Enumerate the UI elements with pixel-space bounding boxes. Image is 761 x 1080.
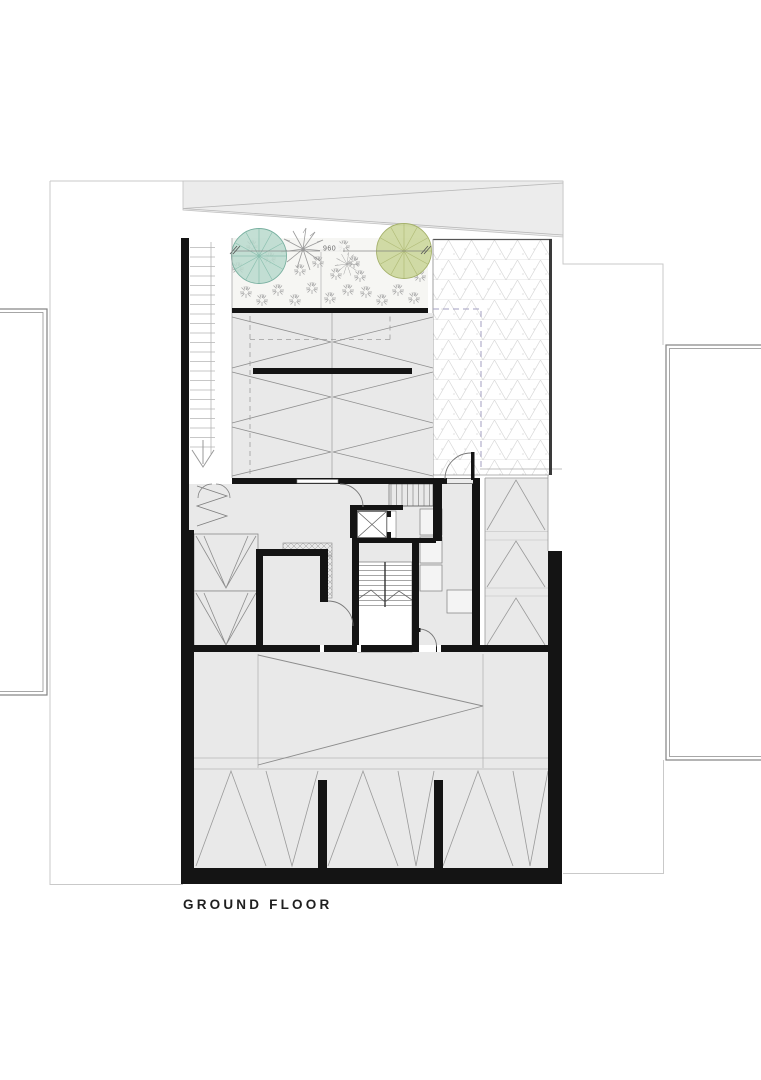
wall-core-v2 (433, 484, 442, 541)
wall-left-upper (181, 238, 189, 530)
floor-title: GROUND FLOOR (183, 897, 332, 912)
wall-core-left-lower (352, 541, 359, 652)
wall-kitchen-h (256, 549, 322, 556)
wall-wc (320, 549, 328, 602)
wall-core-right-lower (412, 541, 419, 652)
wall-left-lower (181, 530, 194, 884)
courtyard-right-wall (549, 239, 552, 475)
elevator-jamb-top (387, 511, 391, 517)
driveway-band (183, 181, 563, 237)
ground-floor-plan-drawing: 960 (0, 0, 761, 1080)
neighbour-building-right-inner (670, 349, 761, 757)
wall-bedroom-east (472, 478, 480, 652)
side-passage-floor (485, 478, 548, 652)
wall-terrace-stub-right (434, 780, 443, 868)
wall-core-h-upper (350, 505, 403, 510)
window-living-north (297, 480, 338, 484)
garden-dimension-label: 960 (323, 246, 336, 253)
table (447, 590, 475, 613)
wall-terrace-stub-left (318, 780, 327, 868)
entry-staircase (389, 484, 433, 506)
wall-right (548, 551, 562, 884)
plot-boundary-right-lower (563, 760, 664, 874)
elevator-jamb-bottom (387, 532, 391, 538)
wall-bottom (182, 868, 562, 884)
courtyard-paving (433, 239, 549, 475)
wall-core-h-lower (352, 538, 436, 543)
wall-living-north (232, 478, 480, 484)
void-squares (194, 534, 258, 648)
plot-boundary-right-step (563, 181, 663, 345)
floor-plan-sheet: 960 (0, 0, 761, 1080)
wall-garden-edge (232, 308, 428, 313)
rear-hall-floor (194, 652, 548, 868)
driveway-surface (183, 181, 563, 237)
tree-teal (232, 229, 287, 284)
wall-rear-south (194, 645, 548, 652)
wall-core-left-upper (350, 506, 357, 538)
car-ramp (190, 242, 215, 467)
neighbour-building-left-inner (0, 313, 43, 692)
courtyard (433, 239, 562, 478)
wall-kitchen-v (256, 556, 263, 652)
garage-floor (232, 313, 433, 478)
wall-garage-bar (253, 368, 412, 374)
